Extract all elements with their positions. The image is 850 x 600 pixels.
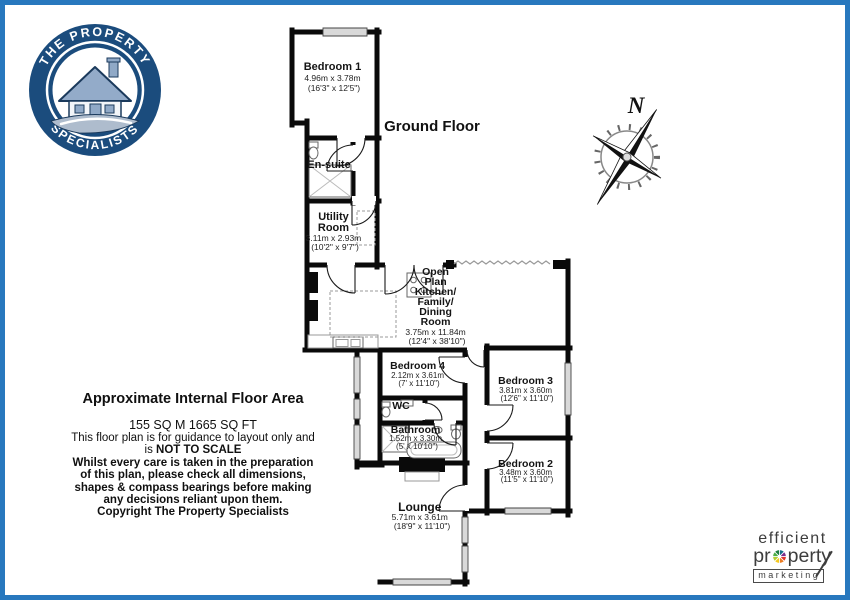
epm-property-pre: pr (753, 547, 770, 567)
floor-title: Ground Floor (384, 118, 480, 135)
ensuite-toilet (309, 147, 318, 159)
compass-hub (623, 153, 631, 161)
sink-bowl-right (351, 340, 360, 347)
disclaimer-scale-line: is NOT TO SCALE (43, 444, 343, 456)
compass-north-label: N (627, 93, 646, 118)
epm-word-property: prperty (753, 547, 831, 567)
disclaimer-line: of this plan, please check all dimension… (43, 469, 343, 481)
room-label-utility: Utility Room 3.11m x 2.93m (10'2" x 9'7"… (306, 211, 365, 252)
not-to-scale: NOT TO SCALE (156, 444, 241, 456)
disclaimer-line: any decisions reliant upon them. (43, 494, 343, 506)
floor-area-heading: Approximate Internal Floor Area (43, 391, 343, 407)
disclaimer-line: This floor plan is for guidance to layou… (43, 432, 343, 444)
room-label-bedroom4: Bedroom 4 2.12m x 3.61m (7' x 11'10") (390, 360, 448, 388)
epm-logo: efficient prperty marketing (753, 531, 831, 584)
disclaimer-block: Approximate Internal Floor Area 155 SQ M… (43, 391, 343, 519)
north-compass-icon: N (563, 88, 690, 225)
room-label-bathroom: Bathroom 1.52m x 3.30m (5' x 10'10") (389, 424, 445, 451)
bifold-zigzag (454, 261, 550, 264)
epm-word-marketing: marketing (753, 569, 824, 583)
scale-prefix: is (145, 444, 157, 456)
copyright-line: Copyright The Property Specialists (43, 506, 343, 518)
room-label-wc: WC (392, 400, 410, 412)
sink-bowl-left (336, 340, 348, 347)
pinwheel-icon (772, 549, 787, 564)
room-label-bedroom3: Bedroom 3 3.81m x 3.60m (12'6" x 11'10") (498, 375, 556, 403)
room-label-bedroom2: Bedroom 2 3.48m x 3.60m (11'5" x 11'10") (498, 458, 556, 484)
floor-area-value: 155 SQ M 1665 SQ FT (43, 419, 343, 432)
island-outline (330, 291, 396, 337)
disclaimer-line: Whilst every care is taken in the prepar… (43, 457, 343, 469)
agency-logo: THE PROPERTY SPECIALISTS (29, 24, 161, 156)
wc-toilet (382, 407, 390, 417)
room-label-ensuite: En-suite (307, 159, 350, 171)
room-label-lounge: Lounge 5.71m x 3.61m (18'9" x 11'10") (392, 498, 453, 531)
lounge-hearth (405, 472, 439, 481)
floorplan-sheet: THE PROPERTY SPECIALISTS (0, 0, 850, 600)
wc-toilet-cistern (382, 402, 390, 407)
room-label-bedroom1: Bedroom 1 4.96m x 3.78m (16'3" x 12'5") (304, 61, 365, 93)
disclaimer-line: shapes & compass bearings before making (43, 482, 343, 494)
